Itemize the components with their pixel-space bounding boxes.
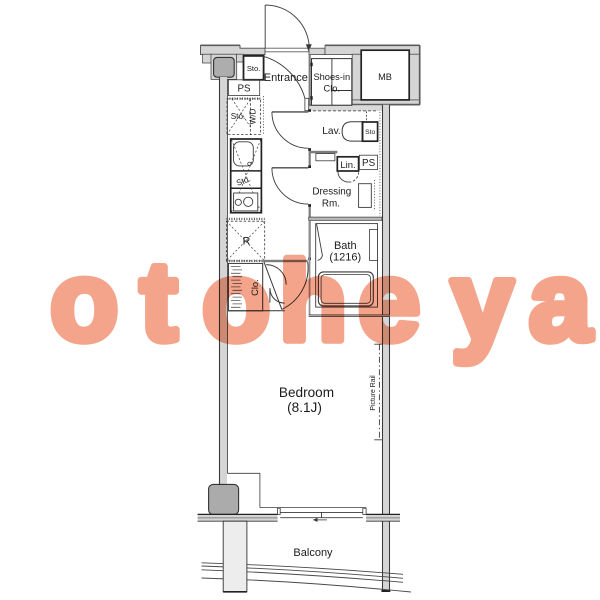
svg-text:PS: PS [362, 158, 376, 169]
svg-text:MB: MB [378, 72, 392, 82]
svg-text:Entrance: Entrance [264, 72, 308, 84]
svg-text:Lav.: Lav. [322, 126, 341, 137]
svg-text:PS: PS [237, 84, 251, 95]
svg-text:Sto.: Sto. [231, 112, 246, 121]
svg-text:Rm.: Rm. [322, 198, 340, 209]
svg-text:Shoes-in: Shoes-in [313, 72, 350, 82]
svg-text:Balcony: Balcony [293, 547, 333, 559]
svg-text:(8.1J): (8.1J) [287, 400, 322, 415]
svg-text:Dressing: Dressing [312, 186, 351, 197]
svg-text:Sto: Sto [365, 129, 375, 136]
svg-text:Sto.: Sto. [247, 64, 261, 73]
svg-text:Clo.: Clo. [324, 83, 341, 93]
svg-text:Picture Rail: Picture Rail [370, 375, 377, 411]
svg-text:W/D: W/D [249, 108, 258, 124]
svg-text:Lin.: Lin. [340, 160, 355, 171]
svg-text:Bedroom: Bedroom [279, 385, 334, 400]
